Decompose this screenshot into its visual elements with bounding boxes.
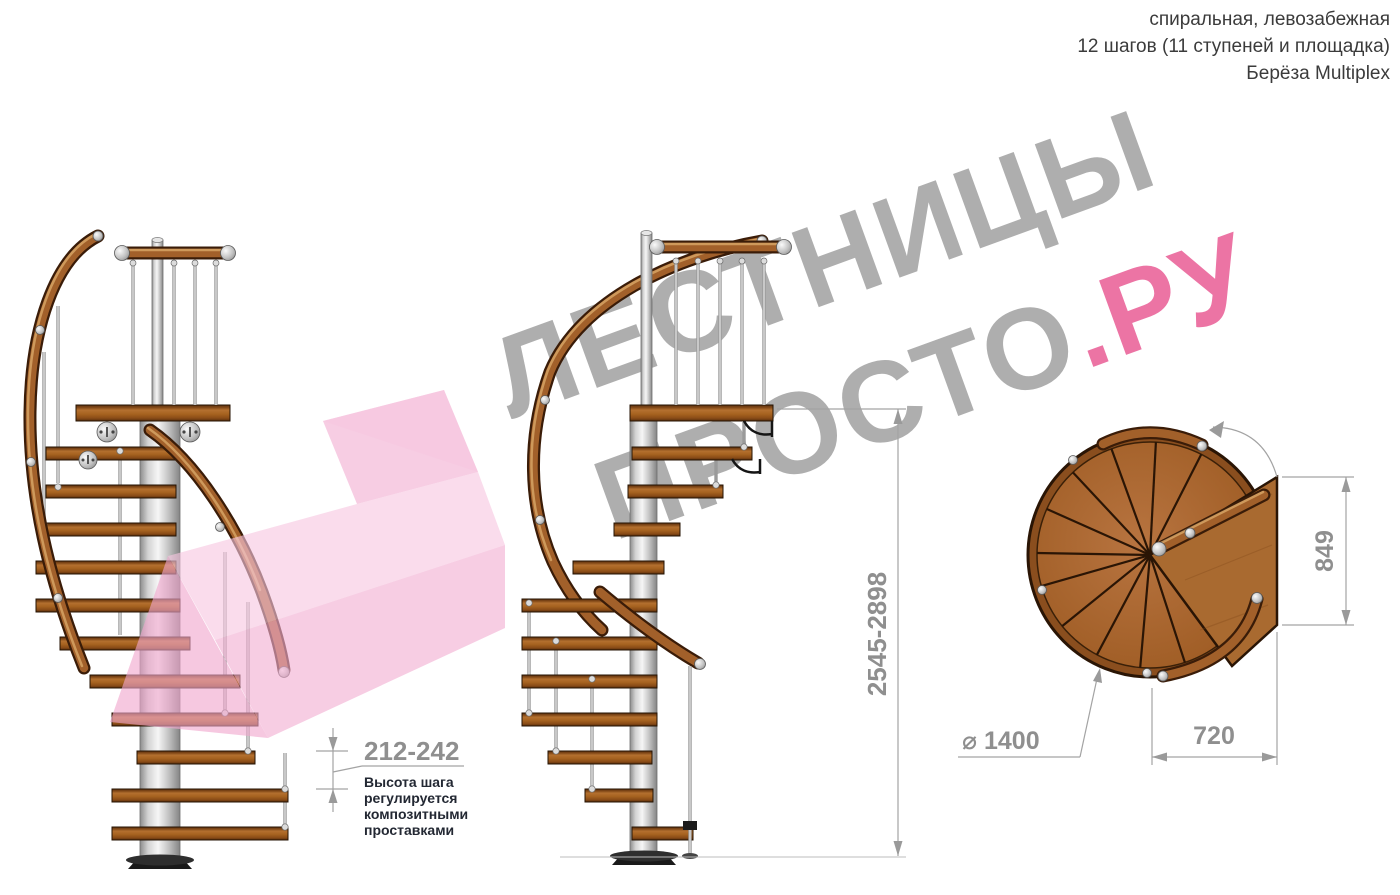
handrail-joint <box>36 326 45 335</box>
post-cap <box>152 238 163 243</box>
handrail-joint <box>1185 528 1195 538</box>
handrail-joint <box>541 396 550 405</box>
handrail-end-cap <box>650 240 665 255</box>
dim-label-platform-width: 720 <box>1193 722 1235 750</box>
tread <box>632 447 752 460</box>
spec-header: спиральная, левозабежная 12 шагов (11 ст… <box>1077 6 1390 87</box>
leader-line <box>333 766 362 772</box>
arrow-head <box>1093 668 1102 683</box>
handrail-ferrule <box>695 659 706 670</box>
handrail-joint <box>27 458 36 467</box>
handrail-end-cap <box>777 240 792 255</box>
tread <box>137 751 255 764</box>
arrow-head <box>1209 421 1224 438</box>
dim-total-height: 2545-2898 <box>777 409 906 856</box>
handrail-joint <box>216 523 225 532</box>
dim-platform-depth: 849 <box>1282 477 1354 625</box>
tread <box>585 789 653 802</box>
platform-slab <box>630 405 773 421</box>
rim-stud <box>1143 669 1152 678</box>
mounting-disc <box>97 422 117 442</box>
dim-label-total-height: 2545-2898 <box>862 572 892 696</box>
pole-base <box>610 851 678 862</box>
arrow-head <box>1152 753 1167 762</box>
tread <box>46 447 176 460</box>
dim-label-diameter: ⌀ 1400 <box>962 727 1040 755</box>
arrow-head <box>329 737 338 751</box>
tread <box>628 485 723 498</box>
step-height-note: Высота шага регулируется композитными пр… <box>364 774 482 838</box>
mounting-disc <box>79 451 97 469</box>
front-elevation-view <box>522 231 906 866</box>
newel-ball <box>1152 542 1166 556</box>
dim-label-platform-depth: 849 <box>1311 530 1339 572</box>
rim-stud <box>1069 456 1078 465</box>
tread <box>46 485 176 498</box>
arrow-head <box>1262 753 1277 762</box>
wall-bracket <box>744 421 772 437</box>
arrow-head <box>894 841 903 856</box>
top-post <box>152 240 163 408</box>
tread <box>573 561 664 574</box>
rod-clamp <box>683 821 697 830</box>
spec-material: Берёза Multiplex <box>1077 60 1390 87</box>
arrow-head <box>1342 610 1351 625</box>
arrow-head <box>1342 477 1351 492</box>
platform-slab <box>76 405 230 421</box>
arrow-head <box>329 789 338 803</box>
mounting-disc <box>180 422 200 442</box>
tread <box>112 789 288 802</box>
tread <box>522 599 657 612</box>
spec-type: спиральная, левозабежная <box>1077 6 1390 33</box>
staircase-drawing: 2545-2898 849 720 ⌀ 140 <box>0 0 1400 895</box>
arrow-head <box>894 409 903 424</box>
dim-label-step-height: 212-242 <box>364 736 459 766</box>
dim-diameter: ⌀ 1400 <box>958 668 1102 757</box>
handrail-ferrule <box>1197 441 1207 451</box>
post-cap <box>641 231 652 236</box>
handrail-end-cap <box>115 246 130 261</box>
tread <box>112 827 288 840</box>
handrail-joint <box>536 516 545 525</box>
tread <box>522 713 657 726</box>
rod-foot <box>682 853 698 859</box>
handrail-joint <box>54 594 63 603</box>
pole-base <box>126 855 194 866</box>
handrail-ferrule <box>93 231 103 241</box>
rim-stud <box>1038 586 1047 595</box>
top-plan-view <box>1028 421 1277 681</box>
tread <box>548 751 652 764</box>
drawing-page: ЛЕСТНИЦЫ ПРОСТО.РУ спиральная, левозабеж… <box>0 0 1400 895</box>
tread <box>40 523 176 536</box>
spec-steps: 12 шагов (11 ступеней и площадка) <box>1077 33 1390 60</box>
top-post <box>641 233 652 408</box>
tread <box>614 523 680 536</box>
handrail-ferrule <box>1252 593 1263 604</box>
wall-bracket <box>732 459 760 474</box>
platform-balustrade <box>115 246 236 406</box>
handrail-end-cap <box>221 246 236 261</box>
handrail-ferrule <box>1158 671 1168 681</box>
leader-line <box>1080 674 1098 757</box>
tread <box>522 637 657 650</box>
